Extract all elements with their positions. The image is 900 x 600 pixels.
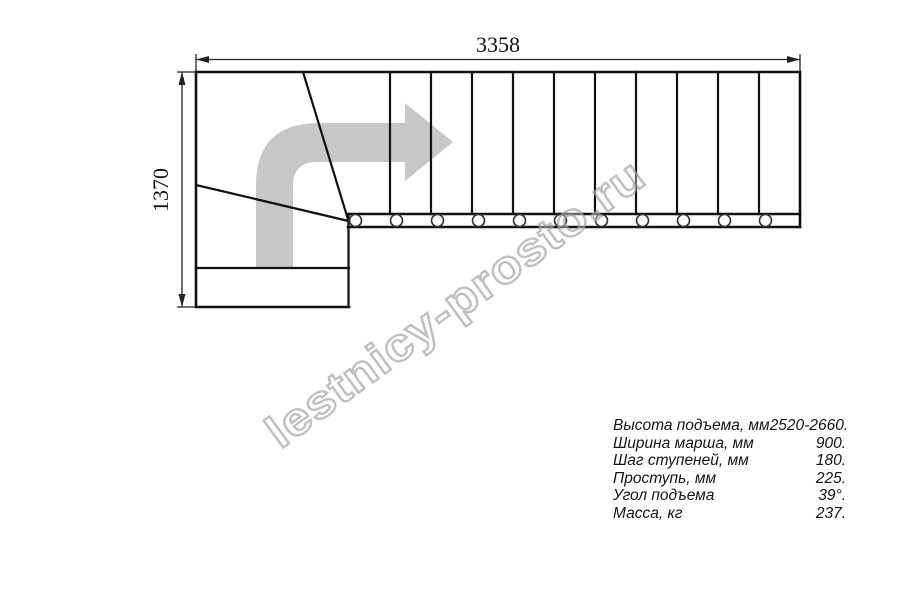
spec-label: Масса, кг [613, 505, 682, 523]
baluster-icon [350, 215, 362, 227]
spec-label: Ширина марша, мм [613, 435, 754, 453]
spec-value: 180. [816, 452, 846, 470]
spec-value: 39°. [818, 487, 846, 505]
width-dimension-label: 3358 [476, 32, 520, 57]
spec-label: Высота подъема, мм [613, 417, 770, 435]
spec-table: Высота подъема, мм 2520-2660. Ширина мар… [613, 417, 846, 522]
baluster-icon [637, 215, 649, 227]
baluster-icon [391, 215, 403, 227]
left-dimension: 1370 [148, 72, 186, 307]
baluster-icon [760, 215, 772, 227]
spec-label: Шаг ступеней, мм [613, 452, 749, 470]
spec-row-height: Высота подъема, мм 2520-2660. [613, 417, 846, 435]
direction-arrow [256, 103, 453, 268]
watermark-text: lestnicy-prosto.ru [256, 148, 655, 458]
baluster-icon [678, 215, 690, 227]
spec-row-step-rise: Шаг ступеней, мм 180. [613, 452, 846, 470]
direction-arrow-shape [256, 103, 453, 268]
spec-row-angle: Угол подъема 39°. [613, 487, 846, 505]
spec-value: 2520-2660. [770, 417, 848, 435]
spec-label: Проступь, мм [613, 470, 716, 488]
spec-value: 237. [816, 505, 846, 523]
stair-plan-page: 3358 1370 lestnicy-prosto.ru Высота подъ… [0, 0, 900, 600]
spec-value: 900. [816, 435, 846, 453]
spec-label: Угол подъема [613, 487, 714, 505]
height-dimension-label: 1370 [148, 168, 173, 212]
baluster-icon [473, 215, 485, 227]
dim-arrow-left-icon [196, 56, 209, 63]
dim-arrow-down-icon [179, 294, 186, 307]
dim-arrow-right-icon [787, 56, 800, 63]
baluster-icon [432, 215, 444, 227]
dim-arrow-up-icon [179, 72, 186, 85]
baluster-icon [719, 215, 731, 227]
spec-value: 225. [816, 470, 846, 488]
spec-row-tread: Проступь, мм 225. [613, 470, 846, 488]
spec-row-mass: Масса, кг 237. [613, 505, 846, 523]
spec-row-flight-width: Ширина марша, мм 900. [613, 435, 846, 453]
